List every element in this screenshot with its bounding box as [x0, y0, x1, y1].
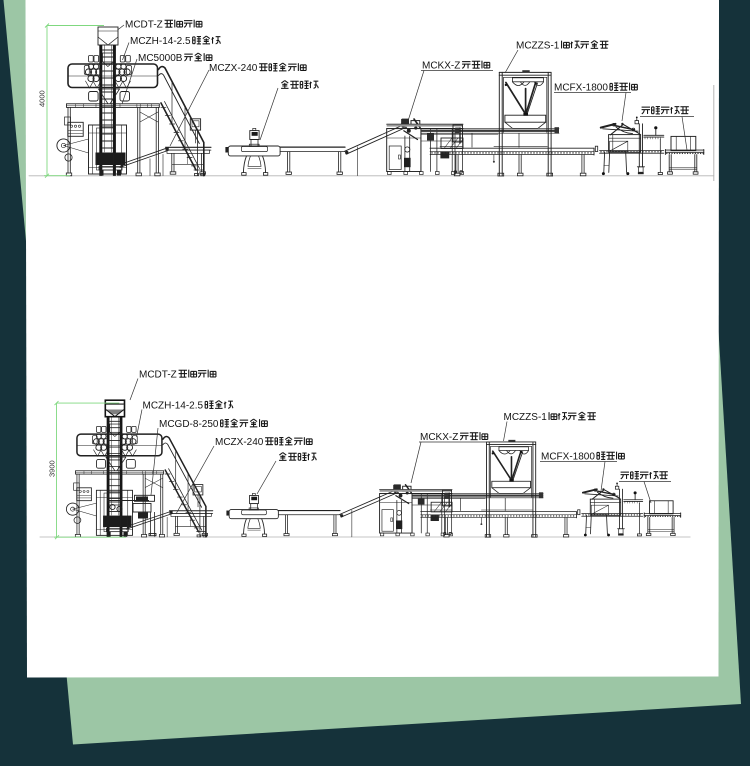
svg-text:MCZH-14-2.5: MCZH-14-2.5 — [130, 36, 191, 47]
svg-text:MCKX-Z: MCKX-Z — [422, 61, 460, 72]
svg-text:MCZX-240: MCZX-240 — [215, 437, 264, 448]
svg-text:MCDT-Z: MCDT-Z — [139, 370, 177, 381]
svg-text:MCZX-240: MCZX-240 — [209, 63, 258, 74]
svg-text:MCGD-8-250: MCGD-8-250 — [159, 419, 219, 430]
svg-text:3900: 3900 — [48, 460, 57, 477]
svg-text:MCZH-14-2.5: MCZH-14-2.5 — [143, 401, 204, 412]
svg-text:MC5000B: MC5000B — [138, 53, 183, 64]
svg-text:MCFX-1800: MCFX-1800 — [554, 83, 608, 94]
svg-text:MCZZS-1: MCZZS-1 — [504, 412, 548, 423]
svg-text:4000: 4000 — [38, 90, 47, 107]
svg-text:MCFX-1800: MCFX-1800 — [541, 452, 595, 463]
svg-text:MCDT-Z: MCDT-Z — [125, 20, 163, 31]
svg-text:MCZZS-1: MCZZS-1 — [516, 41, 560, 52]
svg-text:MCKX-Z: MCKX-Z — [420, 432, 458, 443]
